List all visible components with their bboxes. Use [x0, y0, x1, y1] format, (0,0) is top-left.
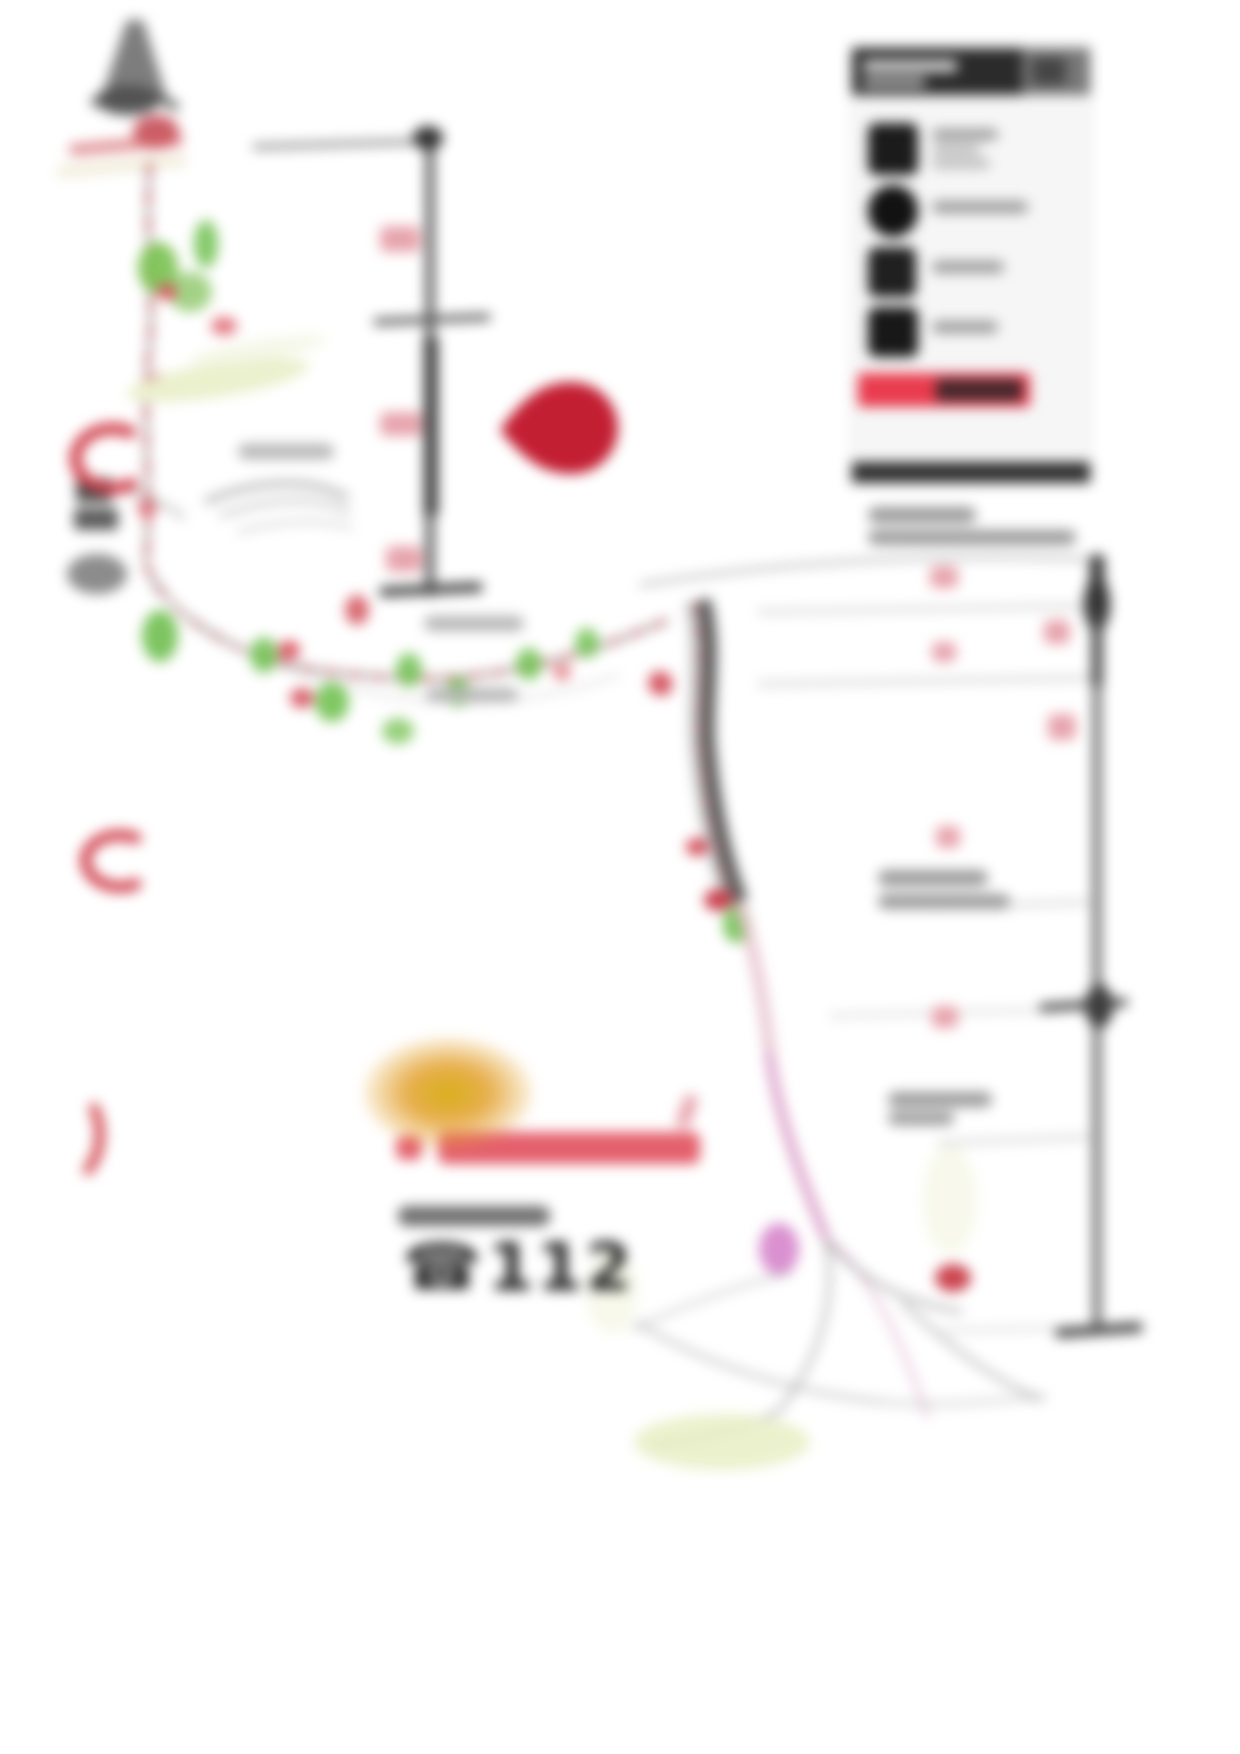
right-elevation-line [830, 554, 1142, 1333]
elevation-label-bar [380, 226, 420, 252]
rock-sketch [67, 478, 352, 594]
elevation-label-bar [1044, 620, 1070, 644]
elevation-label-bar [932, 642, 956, 662]
elevation-label-bar [1048, 714, 1076, 740]
legend-row2-text-bar [932, 201, 1028, 213]
ledge-bands [124, 329, 328, 411]
legend-icon-2 [868, 185, 918, 237]
red-grade-marks [76, 429, 136, 1170]
legend-photo-detail [1032, 57, 1066, 85]
legend-logo-text-bar [936, 379, 1022, 401]
emergency-call-block: ☎ 112 [402, 1226, 642, 1310]
legend-row3-text-bar [932, 261, 1004, 273]
legend-title-text-bar [862, 60, 958, 72]
credits-line1-bar [868, 507, 976, 523]
legend-title-band [852, 48, 1090, 95]
legend-subtitle-text-bar [862, 78, 926, 87]
orange-highlight [363, 1037, 533, 1149]
emergency-caption-bar [398, 1206, 550, 1226]
rock-wall-band [653, 600, 751, 943]
legend-row1-text-bar3 [932, 159, 990, 168]
elevation-label-bar [386, 546, 422, 572]
elevation-label-bar [932, 1006, 958, 1028]
legend-row4-text-bar [932, 321, 998, 333]
legend-bottom-strip [852, 462, 1090, 483]
legend-row1-text-bar [932, 129, 998, 140]
blurred-route-topo-map: ☎ 112 [0, 0, 1240, 1754]
legend-photo-thumbnail [1022, 48, 1090, 95]
wall-name-label-bar [238, 444, 334, 459]
traverse-label-bar2 [426, 688, 518, 702]
elevation-label-bar [936, 826, 960, 848]
location-pin-icon [500, 382, 618, 474]
legend-panel [852, 45, 1090, 482]
telephone-icon: ☎ [402, 1236, 482, 1300]
elevation-label-bar [930, 566, 958, 588]
elevation-label-bar [380, 412, 422, 436]
wall-section-label-bar1 [878, 870, 988, 886]
legend-icon-1 [868, 123, 918, 175]
legend-icon-3 [868, 247, 916, 297]
lower-section-label-bar2 [888, 1112, 954, 1125]
emergency-number: 112 [488, 1235, 635, 1301]
lower-section-label-bar1 [888, 1092, 992, 1107]
legend-icon-4 [868, 307, 918, 357]
legend-row1-text-bar2 [932, 145, 980, 154]
credits-line2-bar [868, 530, 1076, 545]
route-lower-section [586, 905, 1046, 1470]
legend-logo-band [858, 373, 1030, 407]
summit-peak [58, 20, 186, 172]
traverse-label-bar [424, 616, 524, 631]
wall-section-label-bar2 [878, 894, 1010, 909]
